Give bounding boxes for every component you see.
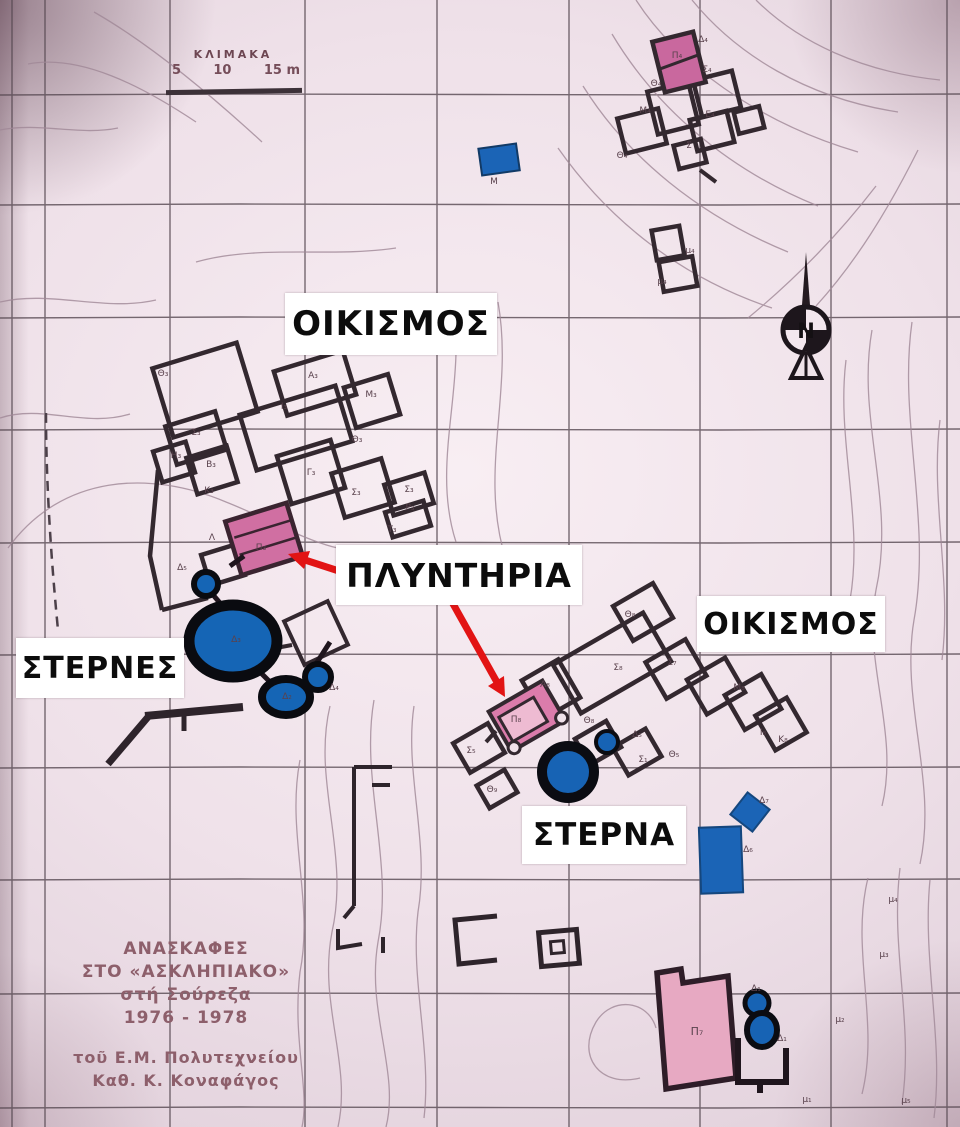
- room-label: Ι₈: [760, 728, 767, 738]
- room-label: Μ₈: [733, 683, 745, 693]
- room-label: μ₁: [802, 1095, 812, 1105]
- north-letter: N: [797, 319, 815, 343]
- dashed-boundary-line: [46, 413, 58, 630]
- room-label: Θ₈: [625, 610, 636, 620]
- room-label: Δ₅: [632, 730, 642, 740]
- room-label: Θ₅: [669, 750, 680, 760]
- credit-line: ΑΝΑΣΚΑΦΕΣ: [58, 938, 314, 961]
- credits-block: ΑΝΑΣΚΑΦΕΣ ΣΤΟ «ΑΣΚΛΗΠΙΑΚΟ» στή Σούρεζα 1…: [58, 938, 314, 1092]
- room-label: Θ₃: [352, 435, 363, 445]
- reservoir-east: [699, 826, 743, 893]
- credit-line: ΣΤΟ «ΑΣΚΛΗΠΙΑΚΟ»: [58, 961, 314, 984]
- room-label: Δ₄: [698, 35, 708, 45]
- scale-tick: 5: [172, 63, 181, 78]
- cistern-label: ΣΤΕΡΝΑ: [522, 806, 686, 864]
- room-label: Π₃: [256, 543, 267, 553]
- room-label: μ₃: [879, 950, 889, 960]
- room-label: Σ₃: [191, 428, 201, 438]
- northeast-building-plan: [617, 71, 764, 292]
- room-label: Σ₈: [613, 663, 623, 673]
- room-label: Δ₁: [777, 1034, 787, 1044]
- room-label: Δ₄: [329, 683, 339, 693]
- cistern-east: [542, 746, 594, 798]
- room-label: Π₇: [691, 1025, 704, 1038]
- settlement-label-right: ΟΙΚΙΣΜΟΣ: [697, 596, 885, 652]
- room-label: Δ₃: [231, 635, 241, 645]
- credit-line: τοῦ Ε.Μ. Πολυτεχνείου: [58, 1046, 314, 1069]
- room-label: Σ₁: [638, 755, 648, 765]
- room-label: Μ₄: [639, 106, 651, 116]
- room-label: Σ₅: [466, 746, 476, 756]
- room-label: Θ₄: [651, 79, 662, 89]
- room-label: Σ₃: [404, 485, 414, 495]
- room-label: Σ: [686, 141, 692, 151]
- room-label: Τ₃: [386, 525, 396, 535]
- room-label: μ₄: [657, 277, 667, 287]
- room-label: Ρ₃: [405, 503, 414, 513]
- credit-line: στή Σούρεζα: [58, 984, 314, 1007]
- settlement-label-top: ΟΙΚΙΣΜΟΣ: [285, 293, 497, 355]
- room-label: μ₂: [835, 1015, 845, 1025]
- room-label: Α₈: [540, 680, 550, 690]
- scale-ticks: 5 10 15 m: [158, 61, 308, 78]
- room-label: Μ: [490, 177, 498, 187]
- washeries-arrow-right: [452, 602, 505, 697]
- scale-tick: 15 m: [264, 63, 300, 78]
- well-southeast: [747, 1013, 777, 1047]
- north-indicator: N: [783, 252, 829, 378]
- scale-tick: 10: [213, 63, 231, 78]
- washery-room-1: [225, 503, 303, 575]
- room-label: Θ₄: [617, 151, 628, 161]
- room-label: Δ₂: [282, 692, 292, 702]
- room-label: Δ₁: [751, 984, 761, 994]
- credit-line: Καθ. Κ. Κοναφάγος: [58, 1069, 314, 1092]
- room-label: Β₃: [206, 460, 216, 470]
- room-label: Η₃: [171, 451, 182, 461]
- room-label: Π₈: [511, 715, 522, 725]
- cisterns-west: [189, 556, 331, 715]
- washeries-label: ΠΛΥΝΤΗΡΙΑ: [336, 545, 582, 605]
- room-label: Σ₃: [351, 488, 361, 498]
- room-label: Γ₃: [307, 468, 316, 478]
- room-label: Ι₃: [281, 402, 288, 412]
- cistern-east-small: [596, 731, 618, 753]
- room-label: Δ₆: [743, 845, 753, 855]
- settlement-upper-plan: [150, 343, 434, 665]
- room-label: Δ₇: [759, 796, 769, 806]
- map-scale: ΚΛΙΜΑΚΑ 5 10 15 m: [158, 48, 308, 78]
- room-label: Α₃: [308, 371, 318, 381]
- site-plan-photo: N Θ₃Α₃Μ₃Ι₃Θ₃Σ₃Η₃Β₃Γ₃Σ₃Κ₃Σ₃Ρ₃Π₃ΛΤ₃Δ₅Δ₄Δ₂Δ…: [0, 0, 960, 1127]
- room-label: Κ₈: [778, 735, 788, 745]
- scale-title: ΚΛΙΜΑΚΑ: [158, 48, 308, 61]
- room-label: Σ₄: [702, 65, 712, 75]
- room-label: Θ₃: [158, 369, 169, 379]
- cistern-small-right: [305, 664, 331, 690]
- room-label: Σ₇: [667, 658, 677, 668]
- reservoir-top: [478, 143, 519, 175]
- room-label: Θ₈: [584, 716, 595, 726]
- cisterns-label: ΣΤΕΡΝΕΣ: [16, 638, 184, 698]
- room-label: Κ₃: [204, 486, 214, 496]
- room-label: Ε₄: [705, 110, 715, 120]
- room-label: Δ₅: [177, 563, 187, 573]
- cistern-small-top: [194, 572, 218, 596]
- room-label: Λ: [209, 533, 216, 543]
- room-label: μ₄: [685, 246, 695, 256]
- credit-line: 1976 - 1978: [58, 1007, 314, 1030]
- room-label: Μ₃: [365, 390, 377, 400]
- room-label: μ₅: [901, 1096, 911, 1106]
- room-label: Θ₉: [487, 785, 498, 795]
- room-label: μ₄: [888, 895, 898, 905]
- room-label: Π₄: [672, 51, 683, 61]
